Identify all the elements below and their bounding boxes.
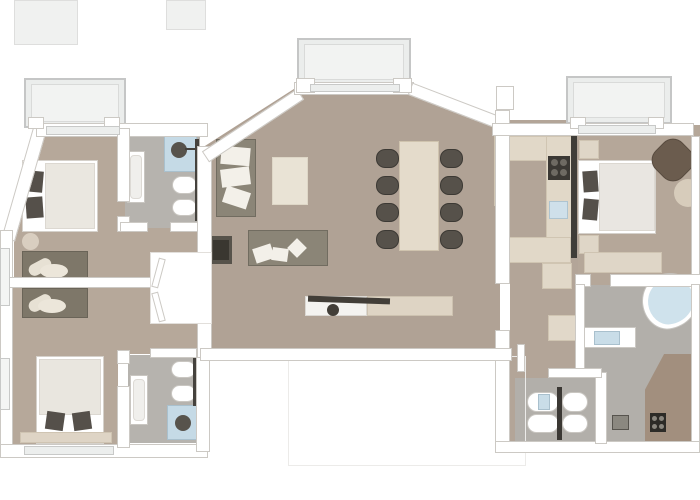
bed-3-pillow: [582, 171, 598, 193]
kitchen-cabinet: [542, 263, 572, 289]
daybed-2-throw: [38, 299, 66, 313]
bed-2-bench: [20, 432, 112, 443]
sauna-stove-stone: [652, 424, 657, 429]
dining-chair: [376, 149, 399, 168]
washbasin-spa: [594, 331, 620, 345]
wall: [200, 348, 512, 361]
hall-bench: [548, 315, 577, 341]
dining-chair: [376, 176, 399, 195]
window: [0, 358, 10, 410]
sauna-stove-stone: [659, 424, 664, 429]
tv-stand: [327, 304, 339, 316]
fireplace-inset: [213, 240, 229, 260]
kitchen-counter: [546, 136, 572, 246]
wall: [691, 136, 700, 288]
living-rug: [272, 157, 308, 205]
wc-toilet: [562, 414, 588, 433]
neighbor-balcony: [14, 0, 78, 45]
wall: [120, 222, 148, 232]
dining-chair: [440, 149, 463, 168]
cooktop-burner: [551, 159, 558, 166]
wall: [595, 372, 607, 444]
bed-3-duvet: [599, 163, 655, 231]
wall: [691, 284, 700, 446]
dining-chair: [440, 176, 463, 195]
cooktop-burner: [560, 159, 567, 166]
wall-post: [28, 117, 44, 129]
sofa-bottom-cushion: [271, 247, 289, 262]
washbasin-2: [175, 415, 191, 431]
wall: [575, 284, 585, 370]
balcony-right-deck: [573, 82, 665, 118]
wc-washbasin-bowl: [538, 394, 550, 410]
washbasin-1: [171, 142, 187, 158]
wall: [117, 350, 130, 364]
bed-2-pillow: [72, 411, 92, 431]
kitchen-sink: [549, 201, 568, 219]
balcony-center-deck: [304, 44, 404, 80]
sauna-stove-stone: [652, 416, 657, 421]
stool: [22, 233, 39, 250]
bidet-1: [172, 199, 197, 216]
bed-2-pillow: [45, 411, 65, 431]
daybed-1-throw: [40, 264, 68, 278]
dining-table: [399, 141, 439, 251]
neighbor-balcony: [166, 0, 206, 30]
towel-radiator: [612, 415, 629, 430]
bed-2-duvet: [39, 359, 101, 415]
sofa-left-cushion: [220, 166, 251, 187]
door-leaf: [517, 344, 525, 372]
window: [46, 126, 120, 135]
dining-chair: [440, 230, 463, 249]
terrace-outline: [288, 356, 526, 466]
sauna-stove-stone: [659, 416, 664, 421]
toilet-1: [172, 176, 197, 194]
cooktop-burner: [560, 169, 567, 176]
wall: [196, 348, 210, 452]
dining-chair: [376, 230, 399, 249]
wall: [117, 128, 130, 202]
kitchen-counter: [505, 136, 549, 161]
cooktop-burner: [551, 169, 558, 176]
bed-1-duvet: [45, 163, 95, 229]
dining-chair: [440, 203, 463, 222]
nightstand: [579, 140, 599, 159]
wc-partition: [557, 387, 562, 440]
window: [0, 248, 10, 306]
wc-bidet: [527, 414, 559, 433]
wc-toilet: [562, 392, 588, 412]
window: [310, 84, 400, 92]
bed-1-pillow: [25, 196, 43, 218]
window: [24, 446, 114, 455]
wall: [117, 386, 130, 448]
kitchen-counter: [505, 237, 571, 263]
window: [578, 125, 656, 134]
dining-chair: [376, 203, 399, 222]
wall: [610, 274, 700, 287]
bathtub-1-basin: [130, 155, 142, 199]
wall-post: [496, 86, 514, 110]
wall: [0, 277, 162, 288]
wc-floor: [515, 378, 597, 442]
floor-plan: [0, 0, 700, 500]
bed-3-pillow: [582, 198, 599, 220]
wall: [548, 368, 602, 378]
wall: [495, 110, 510, 284]
bedroom-bench: [584, 252, 662, 273]
bathtub-2-basin: [133, 379, 145, 421]
kitchen-divider-wall: [571, 136, 577, 258]
